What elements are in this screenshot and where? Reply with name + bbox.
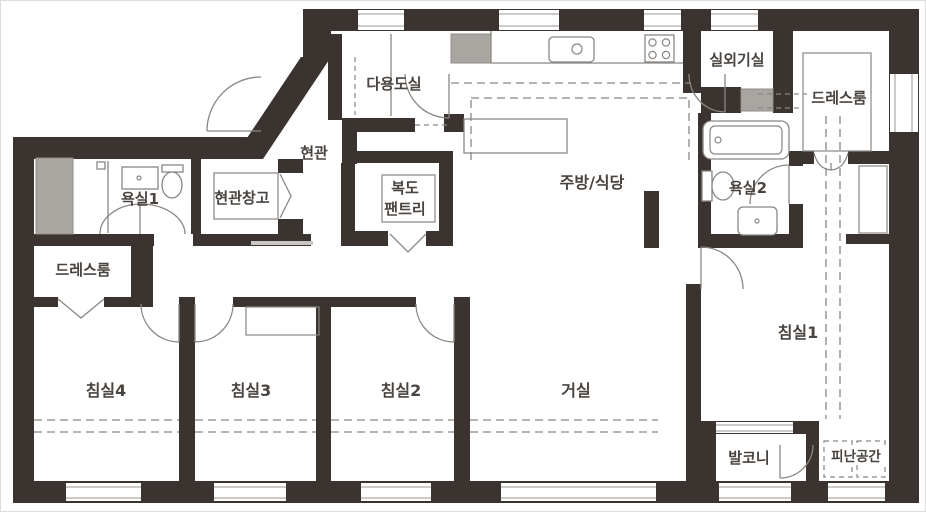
washbasin-bathroom1 [122, 167, 158, 189]
room-label-bathroom1: 욕실1 [121, 190, 159, 208]
room-label-bathroom2: 욕실2 [729, 179, 767, 197]
room-label-bedroom2: 침실2 [381, 381, 422, 400]
room-label-outdoor-unit: 실외기실 [709, 51, 764, 69]
duct-shaft [36, 158, 73, 234]
room-label-refuge: 피난공간 [831, 448, 881, 465]
door-entrance [207, 77, 261, 131]
double-door-dressroom-right [814, 153, 848, 170]
window [358, 10, 404, 30]
room-label-balcony: 발코니 [728, 449, 769, 467]
entrance-step [251, 241, 313, 245]
window [499, 10, 559, 30]
room-label-entrance: 현관 [300, 144, 328, 162]
window [214, 483, 286, 501]
toilet-bathroom1 [162, 165, 183, 198]
washbasin-bathroom2 [738, 207, 777, 235]
closet-bedroom3 [246, 307, 319, 335]
window [716, 422, 793, 433]
window [361, 483, 431, 501]
floor-plan: 다용도실 실외기실 드레스룸 현관 욕실1 현관창고 복도 팬트리 주방/식당 … [0, 0, 926, 512]
bathtub [703, 121, 789, 159]
room-label-entrance-storage: 현관창고 [214, 189, 269, 207]
room-label-pantry-line1: 복도 [391, 179, 419, 197]
window [890, 74, 918, 132]
window [644, 10, 681, 30]
door-bedroom1 [701, 247, 743, 289]
room-label-bedroom1: 침실1 [778, 323, 819, 342]
room-label-refuge-group: 피난공간 [825, 446, 887, 465]
room-label-utility: 다용도실 [366, 75, 421, 93]
bath-fitting [97, 162, 105, 169]
room-label-bedroom4: 침실4 [86, 381, 127, 400]
window [66, 483, 141, 501]
gas-stove [645, 35, 674, 62]
kitchen-sink [549, 37, 594, 62]
folding-door-storage [280, 174, 291, 218]
door-bathroom1 [100, 204, 185, 234]
window [501, 483, 656, 501]
window [719, 483, 791, 501]
room-label-bedroom3: 침실3 [231, 381, 272, 400]
room-label-kitchen-dining: 주방/식당 [560, 173, 625, 192]
room-label-pantry-line2: 팬트리 [384, 200, 425, 218]
door-bedroom3 [195, 304, 233, 342]
wardrobe-bedroom1 [859, 166, 887, 233]
room-label-living: 거실 [561, 381, 590, 400]
bifold-door-dressroom-left [58, 299, 104, 318]
room-label-dressroom-right: 드레스룸 [811, 89, 866, 107]
appliance [451, 34, 491, 63]
door-bedroom2 [416, 304, 454, 342]
fixtures [97, 31, 887, 335]
door-bedroom4 [141, 304, 179, 342]
bifold-door-pantry [390, 234, 426, 252]
window [828, 483, 885, 501]
window [711, 10, 758, 30]
room-label-dressroom-left: 드레스룸 [55, 261, 110, 279]
dining-table [464, 119, 567, 153]
